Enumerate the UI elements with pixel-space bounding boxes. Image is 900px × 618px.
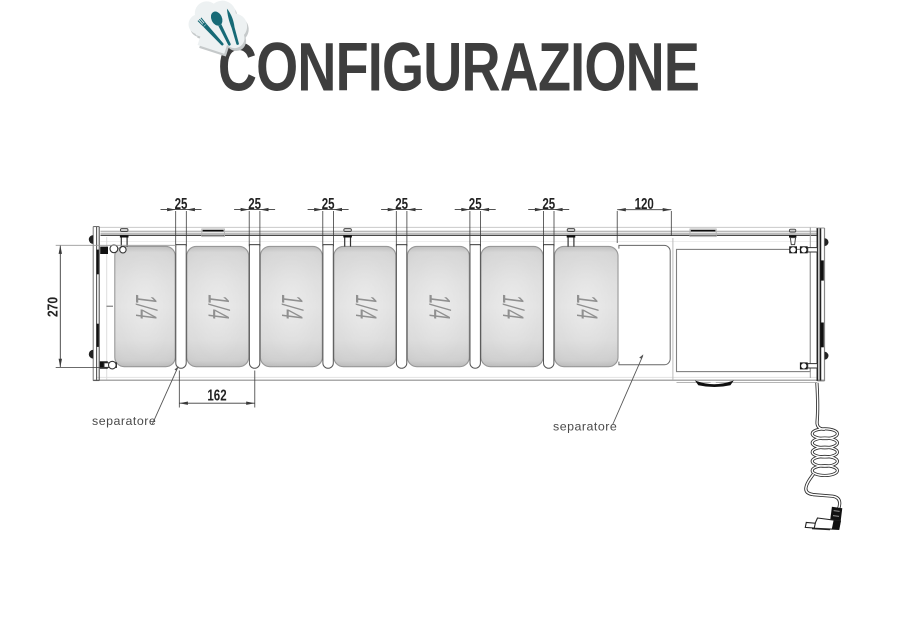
svg-text:270: 270	[45, 297, 61, 317]
svg-text:1/4: 1/4	[422, 293, 455, 322]
svg-text:25: 25	[542, 194, 555, 212]
svg-text:162: 162	[207, 386, 226, 404]
svg-text:25: 25	[322, 194, 335, 212]
svg-text:1/4: 1/4	[202, 293, 235, 322]
svg-text:25: 25	[248, 194, 261, 212]
svg-text:25: 25	[395, 194, 408, 212]
svg-text:25: 25	[469, 194, 482, 212]
svg-text:CONFIGURAZIONE: CONFIGURAZIONE	[218, 29, 699, 106]
svg-text:separatore: separatore	[553, 419, 617, 433]
svg-text:1/4: 1/4	[275, 293, 308, 322]
svg-text:120: 120	[635, 194, 654, 212]
svg-text:1/4: 1/4	[349, 293, 382, 322]
svg-text:1/4: 1/4	[496, 293, 529, 322]
svg-text:separatore: separatore	[92, 414, 156, 428]
svg-text:25: 25	[175, 194, 188, 212]
svg-text:1/4: 1/4	[570, 293, 603, 322]
svg-text:1/4: 1/4	[129, 293, 162, 322]
